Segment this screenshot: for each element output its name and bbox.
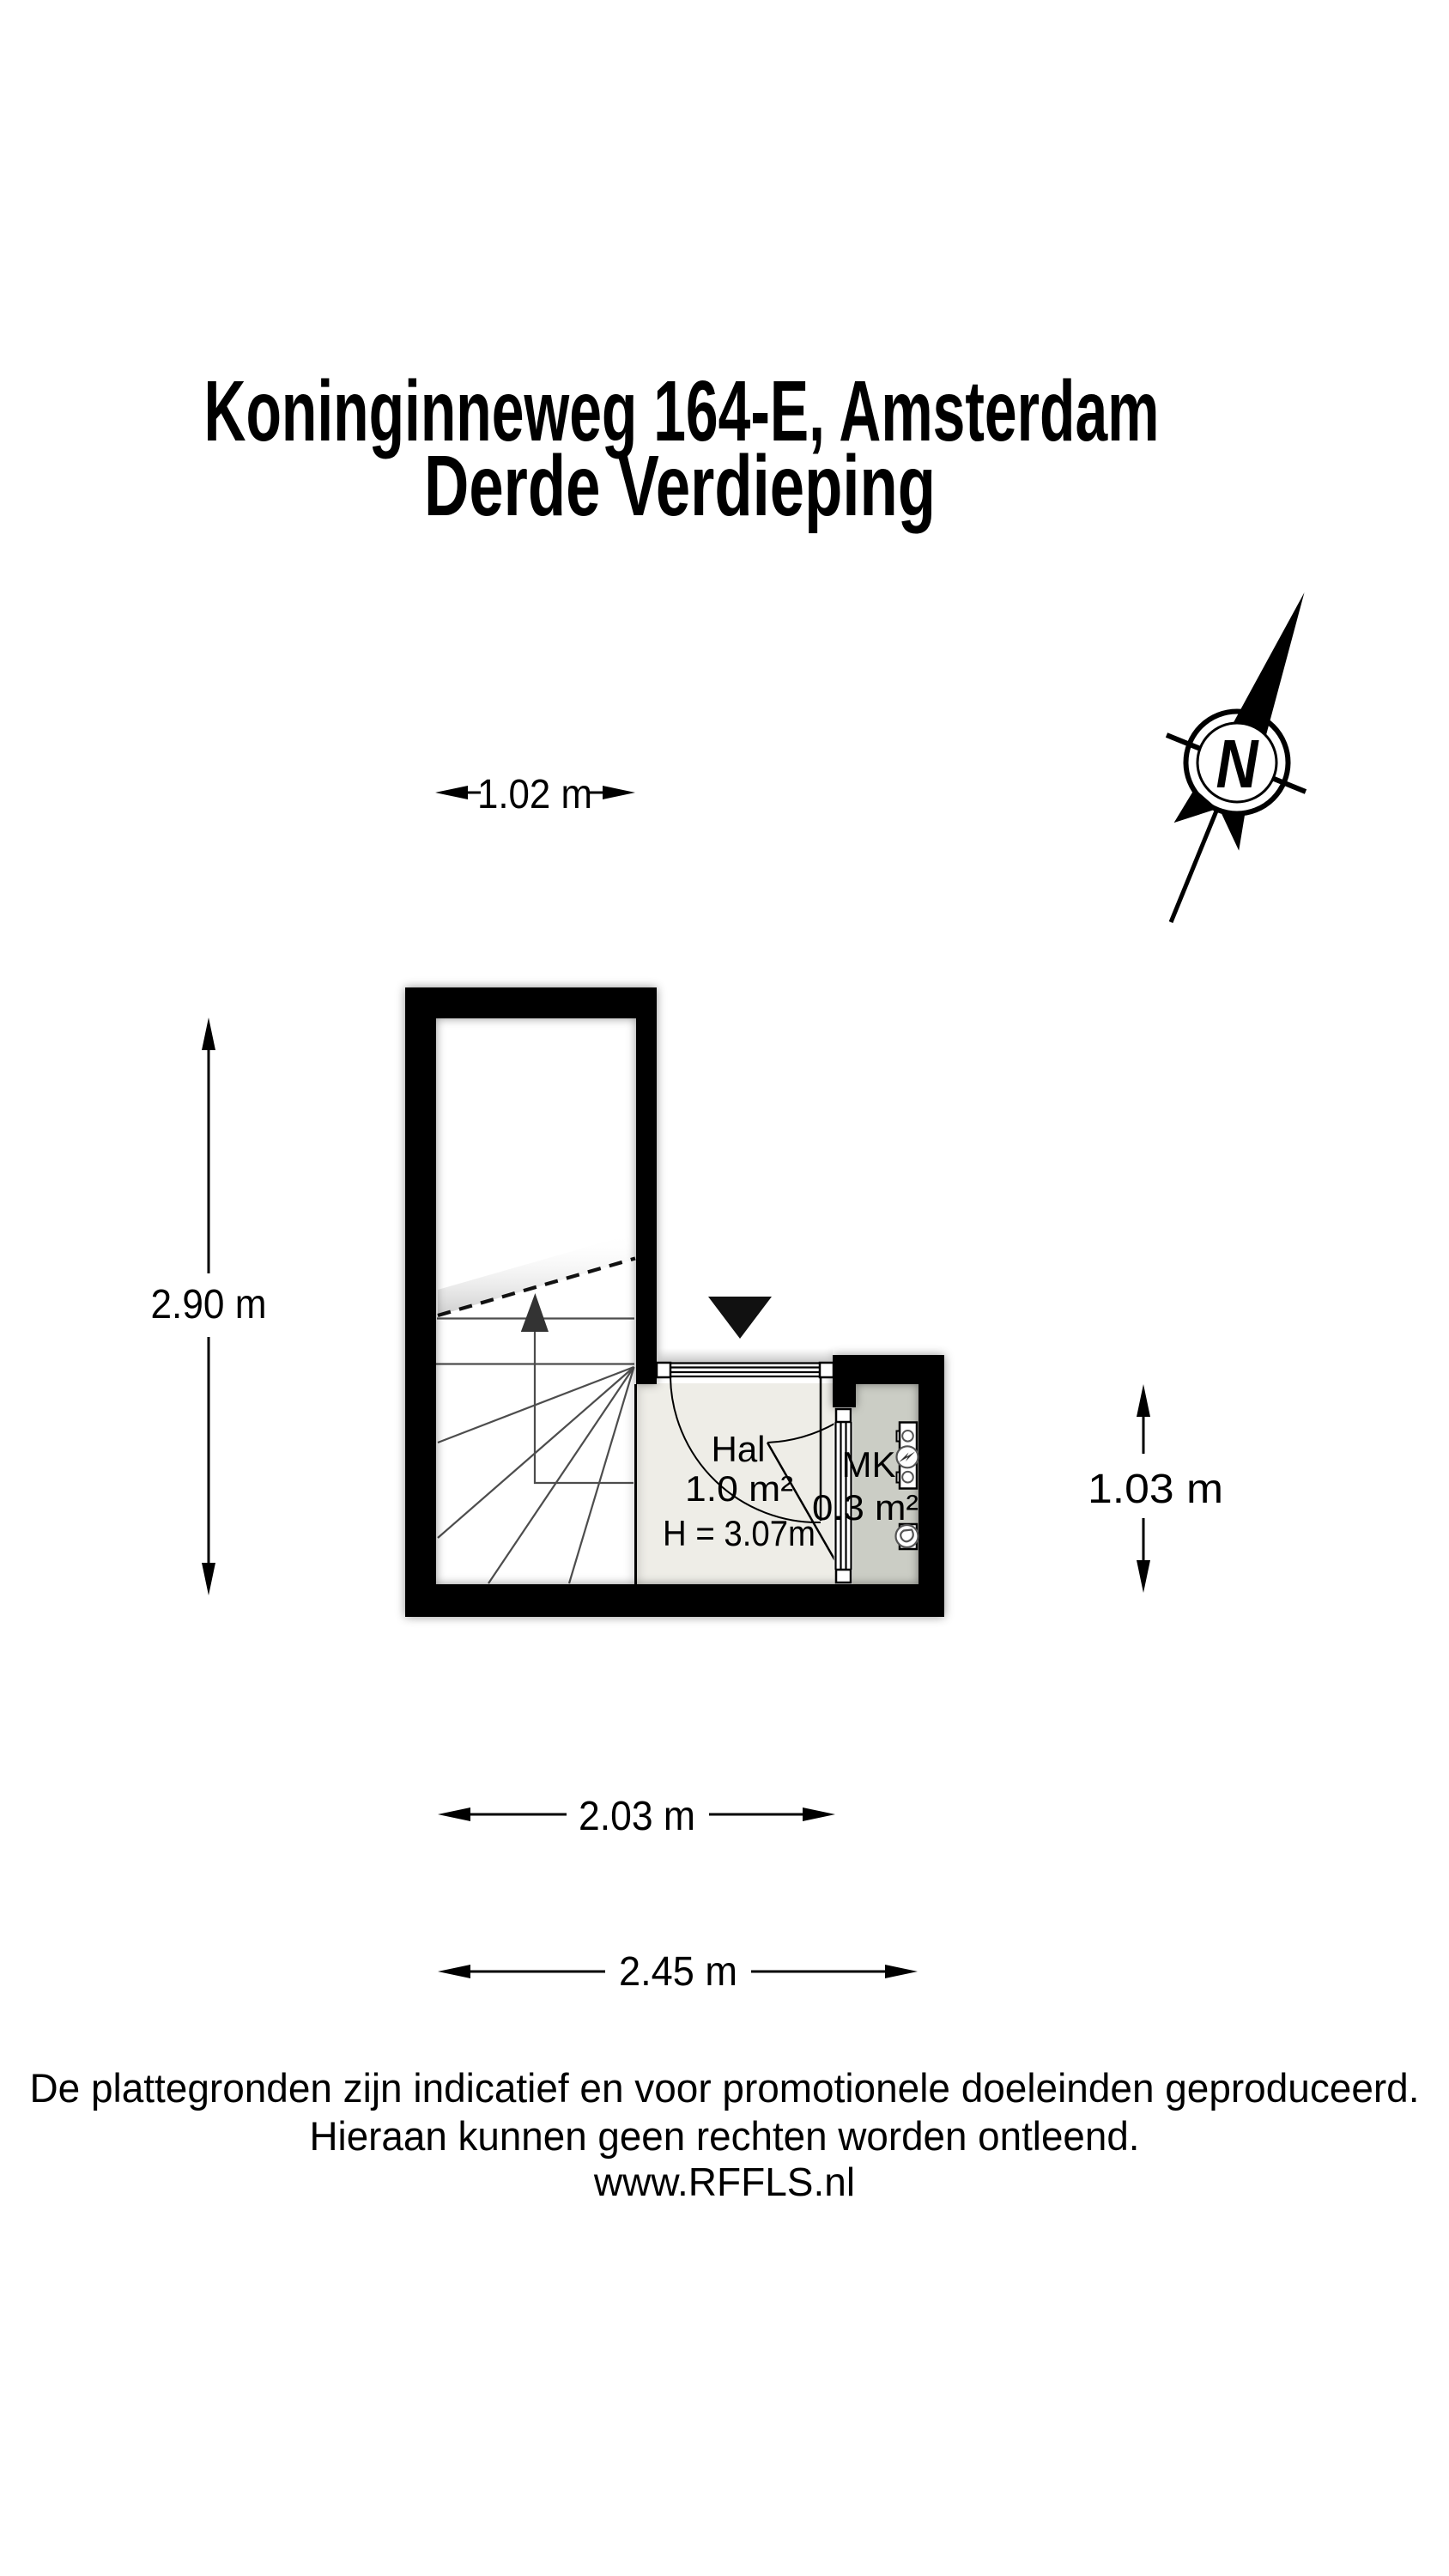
svg-text:2.90 m: 2.90 m <box>151 1282 267 1327</box>
svg-text:www.RFFLS.nl: www.RFFLS.nl <box>593 2160 855 2204</box>
svg-text:De plattegronden zijn indicati: De plattegronden zijn indicatief en voor… <box>30 2065 1420 2111</box>
svg-text:2.45 m: 2.45 m <box>619 1949 737 1995</box>
svg-text:H = 3.07m: H = 3.07m <box>663 1513 815 1553</box>
svg-text:Hal: Hal <box>711 1429 765 1469</box>
svg-text:N: N <box>1216 726 1260 802</box>
svg-text:1.0 m²: 1.0 m² <box>685 1468 793 1509</box>
svg-text:1.03 m: 1.03 m <box>1088 1467 1223 1512</box>
svg-text:1.02 m: 1.02 m <box>477 772 592 817</box>
svg-text:MK: MK <box>842 1444 896 1485</box>
svg-text:Derde Verdieping: Derde Verdieping <box>424 438 936 534</box>
svg-text:0.3 m²: 0.3 m² <box>812 1487 919 1528</box>
svg-text:Hieraan kunnen geen rechten wo: Hieraan kunnen geen rechten worden ontle… <box>310 2113 1140 2159</box>
svg-text:2.03 m: 2.03 m <box>579 1794 695 1839</box>
